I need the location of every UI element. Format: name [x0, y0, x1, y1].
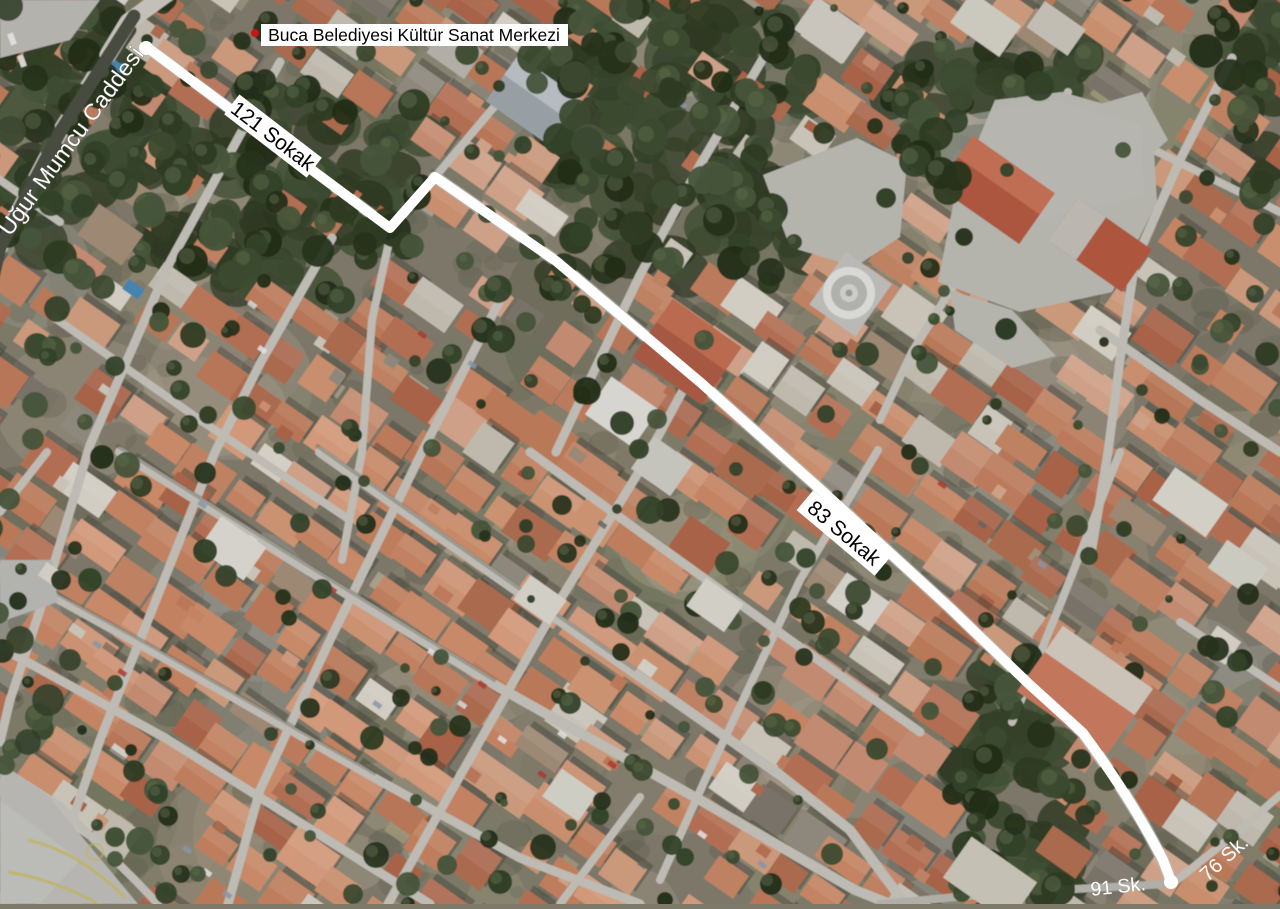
svg-text:Buca Belediyesi Kültür Sanat M: Buca Belediyesi Kültür Sanat Merkezi [268, 25, 560, 45]
